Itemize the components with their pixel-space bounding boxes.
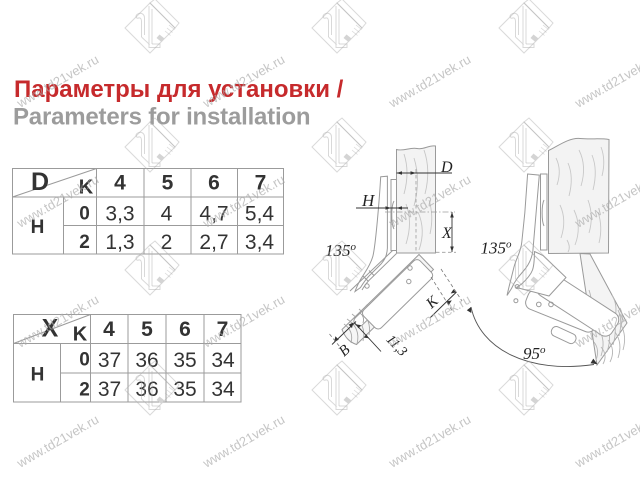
svg-text:www.td21vek.ru: www.td21vek.ru [199,292,287,351]
svg-text:1,3: 1,3 [105,231,134,254]
svg-text:2: 2 [79,232,90,253]
svg-text:37: 37 [98,349,121,372]
svg-text:35: 35 [173,378,196,401]
svg-text:4: 4 [103,318,115,341]
svg-text:www.td21vek.ru: www.td21vek.ru [199,412,287,471]
svg-text:2,7: 2,7 [199,231,228,254]
svg-text:3,3: 3,3 [105,203,134,226]
svg-text:H: H [31,365,45,386]
svg-text:Parameters for installation: Parameters for installation [13,104,310,131]
svg-text:D: D [440,159,453,176]
svg-text:www.td21vek.ru: www.td21vek.ru [385,412,473,471]
svg-text:34: 34 [211,378,235,401]
svg-text:H: H [361,191,376,210]
svg-text:0: 0 [79,350,90,371]
svg-text:www.td21vek.ru: www.td21vek.ru [13,412,101,471]
svg-text:6: 6 [208,172,220,195]
svg-text:www.td21vek.ru: www.td21vek.ru [571,52,640,111]
svg-text:37: 37 [98,378,121,401]
svg-text:0: 0 [79,204,90,225]
svg-text:36: 36 [135,378,158,401]
svg-text:95o: 95o [523,344,546,363]
svg-text:35: 35 [173,349,196,372]
svg-text:5: 5 [162,172,174,195]
svg-text:34: 34 [211,349,235,372]
svg-text:135o: 135o [481,239,513,258]
svg-text:X: X [441,225,453,242]
svg-text:2: 2 [79,380,90,401]
svg-text:4: 4 [161,203,173,226]
svg-text:K: K [73,324,88,346]
svg-text:6: 6 [179,318,191,341]
svg-text:3,4: 3,4 [245,231,275,254]
svg-text:B: B [336,342,354,360]
svg-text:www.td21vek.ru: www.td21vek.ru [385,52,473,111]
svg-text:4: 4 [114,172,126,195]
svg-text:2: 2 [161,231,173,254]
svg-text:D: D [31,168,49,196]
svg-text:5: 5 [141,318,153,341]
svg-text:www.td21vek.ru: www.td21vek.ru [571,412,640,471]
